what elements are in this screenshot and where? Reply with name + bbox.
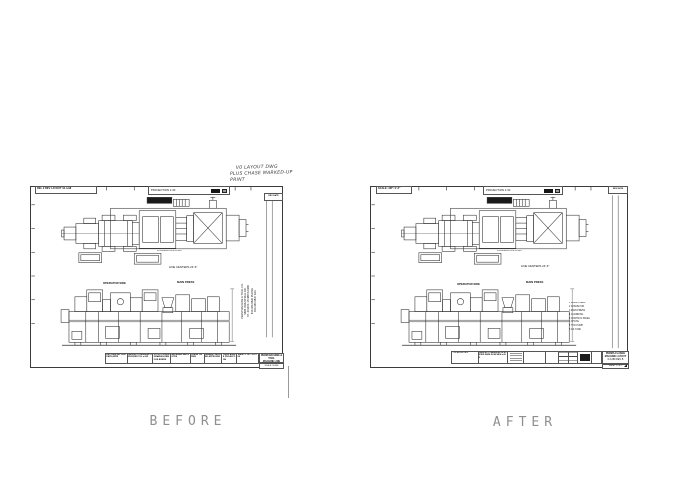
title-box-sub: SCALE: NONE	[259, 363, 284, 369]
title-box: PERMA-FLANGE MACHINE LAYOUT D-1289 REV B	[602, 351, 629, 364]
title-cell-label: TOLERANCES:	[452, 352, 479, 363]
side-view-label-left: OPERATOR SIDE	[103, 282, 129, 285]
scan-canvas: V0 LAYOUT DWG PLUS CHASE MARKED-UP PRINT…	[0, 0, 680, 490]
sheet-corner-mark	[624, 364, 627, 367]
projection-label: PROJECTION 1:40	[151, 189, 209, 192]
title-cell: DO NOT SCALE DRAWING REMOVE BURRS	[153, 354, 171, 363]
sheet-corner-label: REL 2 REV LAYOUT 10-4-98	[35, 186, 97, 194]
projection-strip: PROJECTION 1:40	[483, 186, 563, 195]
title-box: PERM MACHINE & TOOL MACHINE LINE LAYOUT …	[259, 353, 284, 363]
side-view-label-right: MAIN PRESS	[177, 281, 203, 284]
projection-label: PROJECTION 1:40	[486, 189, 542, 192]
title-cell: MATERIAL SEE NOTES	[171, 354, 191, 363]
company-address-vertical: PERM MACHINE & TOOL CO. 9666 INDUSTRIAL …	[241, 271, 257, 331]
plan-caption: LINE CENTERS 24'-6"	[169, 266, 199, 269]
title-cell-empty	[546, 352, 559, 363]
after-caption: AFTER	[465, 415, 585, 430]
title-cell: THIRD ANGLE PROJECTION	[222, 354, 237, 363]
revision-header-box: REV DATE	[608, 186, 628, 194]
title-cell-rows	[508, 352, 524, 363]
company-line: 810-360-9847 FAX	[254, 271, 257, 331]
title-cell-dark	[578, 352, 592, 363]
projection-symbol-icon	[211, 189, 220, 193]
title-cell-empty	[524, 352, 546, 363]
projection-symbol-icon	[544, 189, 553, 193]
plan-sublabel: FOUNDATION PLAN	[497, 250, 525, 253]
after-drawing-sheet: SCALE: 3/8"=1'-0" PROJECTION 1:40 REV DA…	[370, 186, 628, 368]
title-cell: SHEET 1 OF 1 D-1289	[237, 354, 258, 363]
revision-header-box: REV DATE	[264, 193, 283, 201]
notes-list: 1 PRESS FEED 2 CONVEYOR 3 MAIN PRESS 4 G…	[569, 302, 595, 333]
title-cell: UNLESS OTHERWISE SPECIFIED TOL ±.005	[128, 354, 154, 363]
projection-box-icon	[555, 189, 560, 193]
notes-item: 8 OIL TANK	[569, 329, 595, 333]
page-edge-line	[288, 366, 289, 398]
machine-layout-drawing	[61, 197, 248, 345]
title-cell: FINISH 125 RMS	[191, 354, 205, 363]
title-cell-notes: UNLESS OTHERWISE SPECIFIED DIMS IN INCHE…	[479, 352, 509, 363]
title-cell: REV DESCRIPTION DATE APPR	[106, 354, 128, 363]
projection-box-icon	[222, 189, 227, 193]
projection-strip: PROJECTION 1:40	[148, 186, 230, 195]
machine-layout-drawing	[401, 197, 588, 345]
revision-column-lines	[612, 195, 618, 348]
title-block-strip: REV DESCRIPTION DATE APPR UNLESS OTHERWI…	[105, 353, 259, 364]
title-cell-stack	[559, 352, 570, 363]
title-box-line: D-1289 REV B	[603, 358, 628, 361]
after-sheet-vector	[371, 187, 627, 367]
plan-caption: LINE CENTERS 24'-6"	[521, 265, 551, 268]
title-cell-empty	[592, 352, 601, 363]
plan-sublabel: FOUNDATION PLAN	[157, 250, 185, 253]
handwritten-note: V0 LAYOUT DWG PLUS CHASE MARKED-UP PRINT	[230, 164, 305, 185]
revision-column-lines	[266, 201, 272, 337]
side-view-label-right: MAIN PRESS	[526, 281, 554, 284]
title-cell: DRAWN CHECKED APPROVED	[205, 354, 223, 363]
handwritten-note-line: PLUS CHASE MARKED-UP PRINT	[230, 170, 305, 184]
before-caption: BEFORE	[128, 414, 248, 429]
sheet-corner-label: SCALE: 3/8"=1'-0"	[376, 186, 412, 194]
before-drawing-sheet: REL 2 REV LAYOUT 10-4-98 PROJECTION 1:40…	[30, 186, 283, 368]
title-block-strip: TOLERANCES: UNLESS OTHERWISE SPECIFIED D…	[451, 351, 602, 364]
side-view-label-left: OPERATOR SIDE	[457, 283, 483, 286]
title-cell-stack	[569, 352, 578, 363]
